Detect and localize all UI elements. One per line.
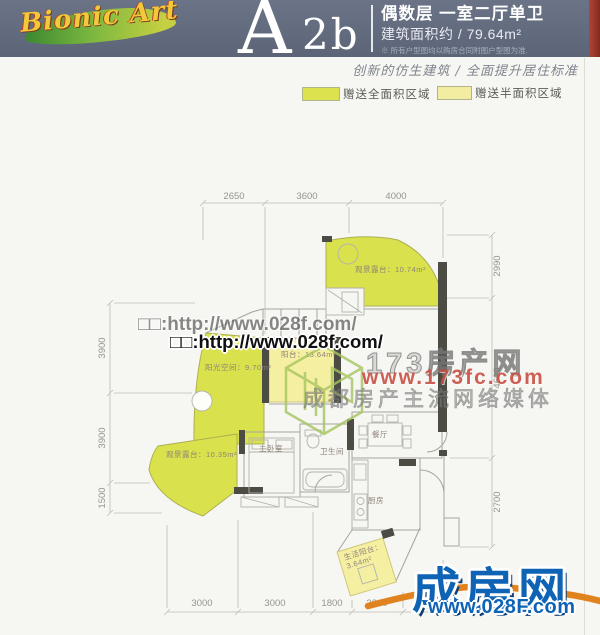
watermark-173-slogan: 成都房产主流网络媒体 [303,383,553,413]
dim-bottom-2: 3000 [264,598,285,609]
dim-left-3: 1500 [97,487,108,508]
dim-top-2: 3600 [296,191,317,202]
dim-left-1: 3900 [97,337,108,358]
terrace-top-label: 观景露台：10.74m² [355,264,426,274]
terrace-bottom-area [149,434,237,516]
kitchen-label: 厨房 [368,495,384,505]
dim-bottom-3: 1800 [321,598,342,609]
dim-right-1: 2990 [492,255,503,276]
dim-top-1: 2650 [223,191,244,202]
chengfang-url: www.028F.com [428,596,576,619]
dim-top-3: 4000 [385,191,406,202]
living-balcony: 生活阳台： 3.64m² [335,528,408,596]
bathroom-label: 卫生间 [320,446,344,456]
sun-space-label: 阳光空间：9.70m² [205,362,271,372]
watermark-url-main: □□:http://www.028f.com/ [170,331,383,353]
dim-bottom-4: 2300 [366,598,387,609]
terrace-bottom-label: 观景露台：10.35m² [166,449,237,459]
master-bedroom-label: 主卧室 [259,443,283,453]
dim-right-3: 2700 [492,491,503,512]
dining-label: 餐厅 [372,430,388,439]
dim-left-2: 3900 [97,427,108,448]
dim-bottom-1: 3000 [191,598,212,609]
flyer-page: Bionic Art A 2b 偶数层 一室二厅单卫 建筑面积约 / 79.64… [0,0,600,635]
